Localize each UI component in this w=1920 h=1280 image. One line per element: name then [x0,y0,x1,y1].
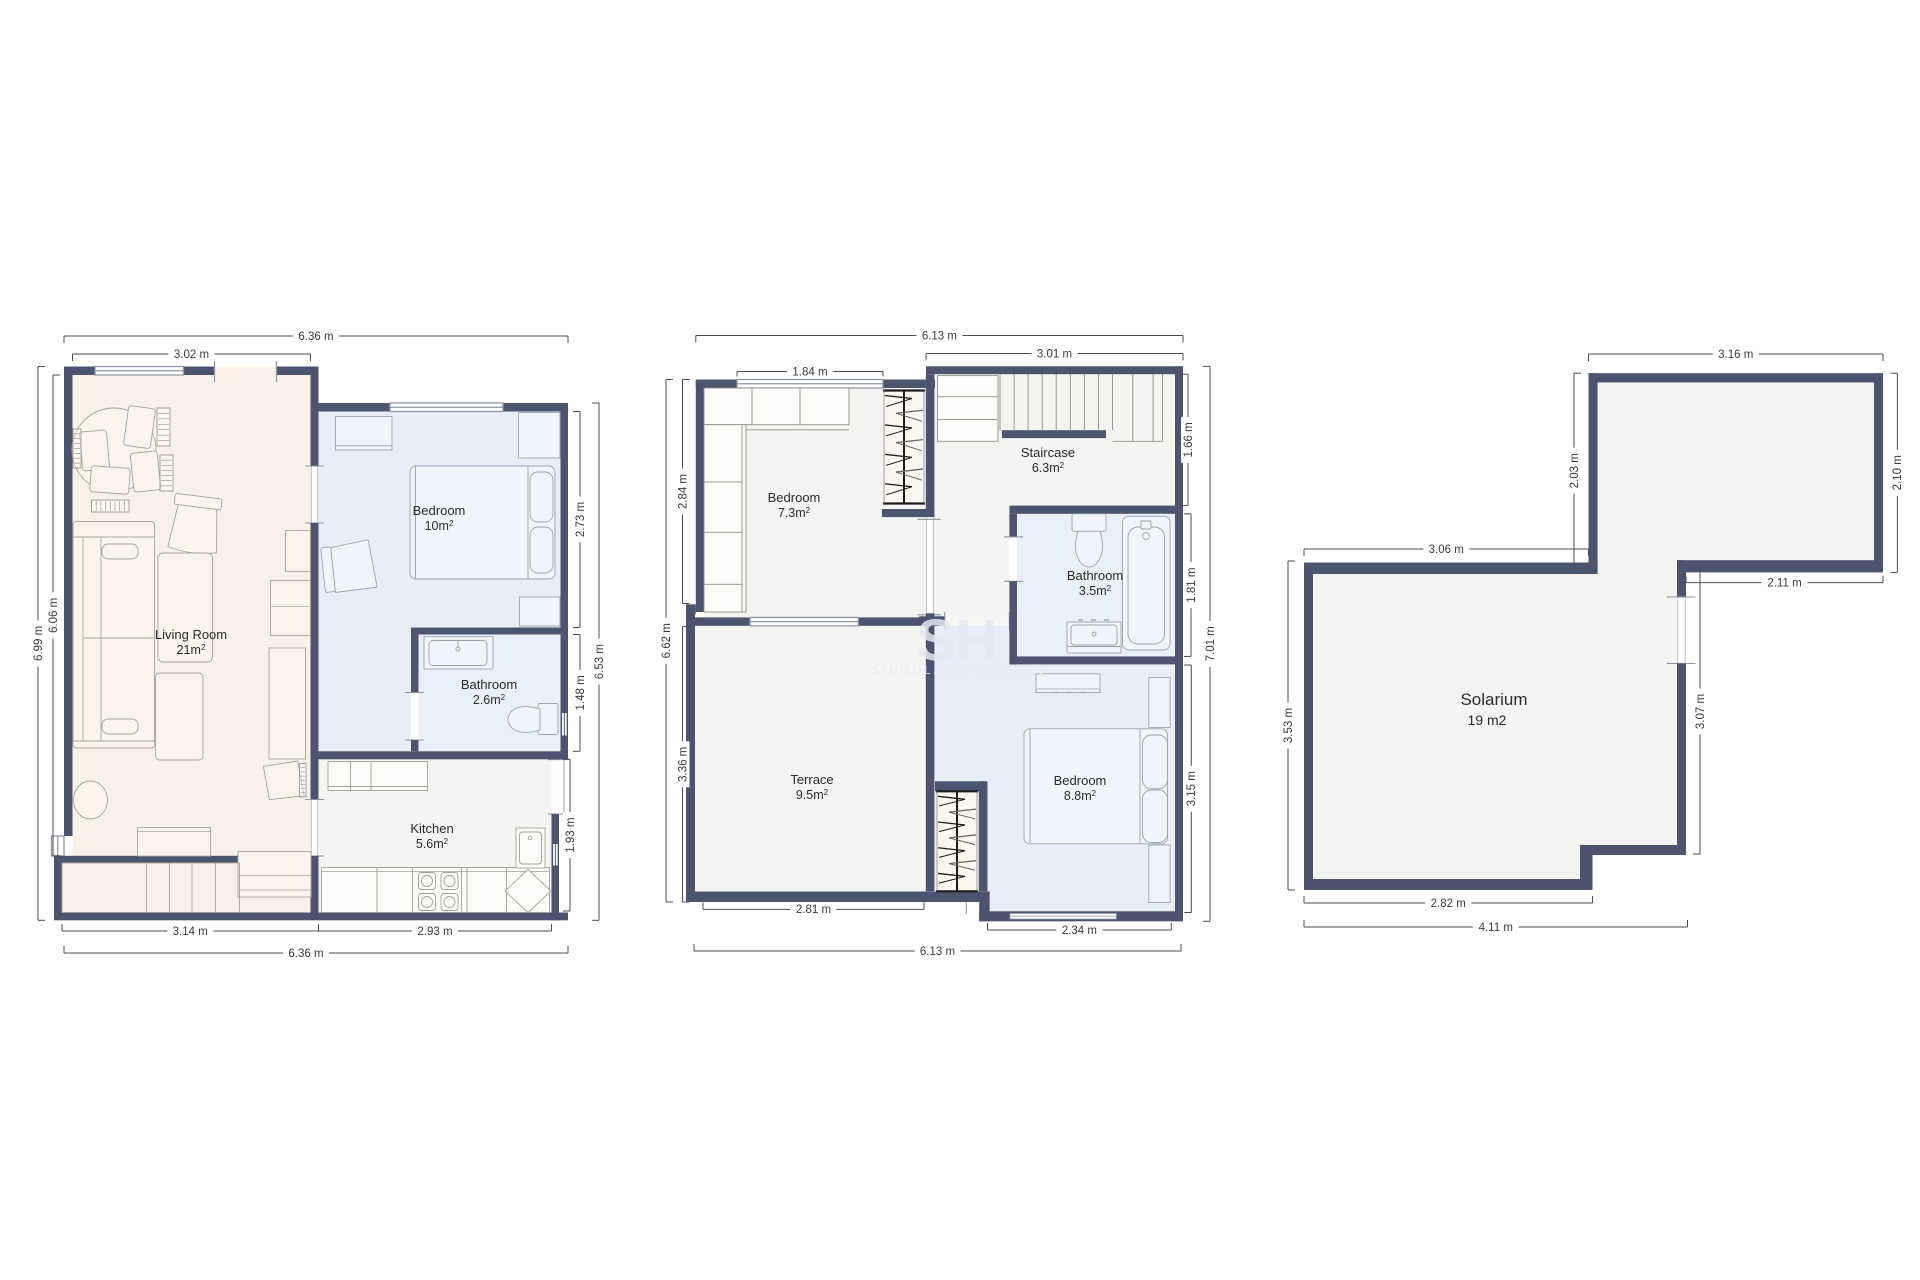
svg-text:2.81 m: 2.81 m [796,904,831,916]
svg-text:2.93 m: 2.93 m [417,926,452,938]
svg-text:1.81 m: 1.81 m [1186,568,1198,603]
svg-text:Terrace: Terrace [790,772,833,787]
svg-text:Kitchen: Kitchen [410,821,453,836]
svg-text:6.99 m: 6.99 m [33,626,45,661]
svg-text:2.10 m: 2.10 m [1892,455,1904,490]
svg-text:2.82 m: 2.82 m [1431,898,1466,910]
svg-text:6.13 m: 6.13 m [920,946,955,958]
svg-text:3.14 m: 3.14 m [173,926,208,938]
svg-text:7.01 m: 7.01 m [1205,626,1217,661]
svg-text:6.06 m: 6.06 m [48,598,60,633]
svg-text:6.36 m: 6.36 m [288,948,323,960]
svg-text:Staircase: Staircase [1021,445,1075,460]
svg-text:Bedroom: Bedroom [413,503,466,518]
svg-text:3.07 m: 3.07 m [1695,694,1707,729]
svg-text:Bedroom: Bedroom [1054,773,1107,788]
svg-text:19 m2: 19 m2 [1468,712,1507,728]
svg-text:2.73 m: 2.73 m [575,502,587,537]
svg-text:2.84 m: 2.84 m [677,474,689,509]
svg-text:3.02 m: 3.02 m [174,349,209,361]
svg-text:1.48 m: 1.48 m [575,675,587,710]
svg-text:SH: SH [917,608,998,673]
svg-text:SINGULARITY HOMES: SINGULARITY HOMES [872,665,1048,677]
svg-text:Bathroom: Bathroom [1067,568,1123,583]
svg-text:3.15 m: 3.15 m [1186,771,1198,806]
svg-text:3.16 m: 3.16 m [1718,349,1753,361]
svg-text:1.93 m: 1.93 m [565,818,577,853]
svg-text:Bedroom: Bedroom [768,490,821,505]
svg-text:3.01 m: 3.01 m [1037,348,1072,360]
svg-text:2.34 m: 2.34 m [1062,925,1097,937]
svg-text:Solarium: Solarium [1460,690,1527,709]
svg-text:4.11 m: 4.11 m [1479,922,1513,934]
svg-text:Living Room: Living Room [155,627,227,642]
svg-text:3.06 m: 3.06 m [1429,544,1464,556]
svg-text:1.66 m: 1.66 m [1183,422,1195,457]
svg-text:6.36 m: 6.36 m [298,331,333,343]
svg-text:6.13 m: 6.13 m [922,330,957,342]
svg-text:3.36 m: 3.36 m [677,747,689,782]
svg-text:1.84 m: 1.84 m [792,366,827,378]
svg-text:3.53 m: 3.53 m [1283,708,1295,743]
svg-text:6.62 m: 6.62 m [661,623,673,658]
svg-text:Bathroom: Bathroom [461,677,517,692]
svg-text:2.11 m: 2.11 m [1767,577,1801,589]
svg-text:2.03 m: 2.03 m [1569,453,1581,488]
svg-text:6.53 m: 6.53 m [594,644,606,679]
